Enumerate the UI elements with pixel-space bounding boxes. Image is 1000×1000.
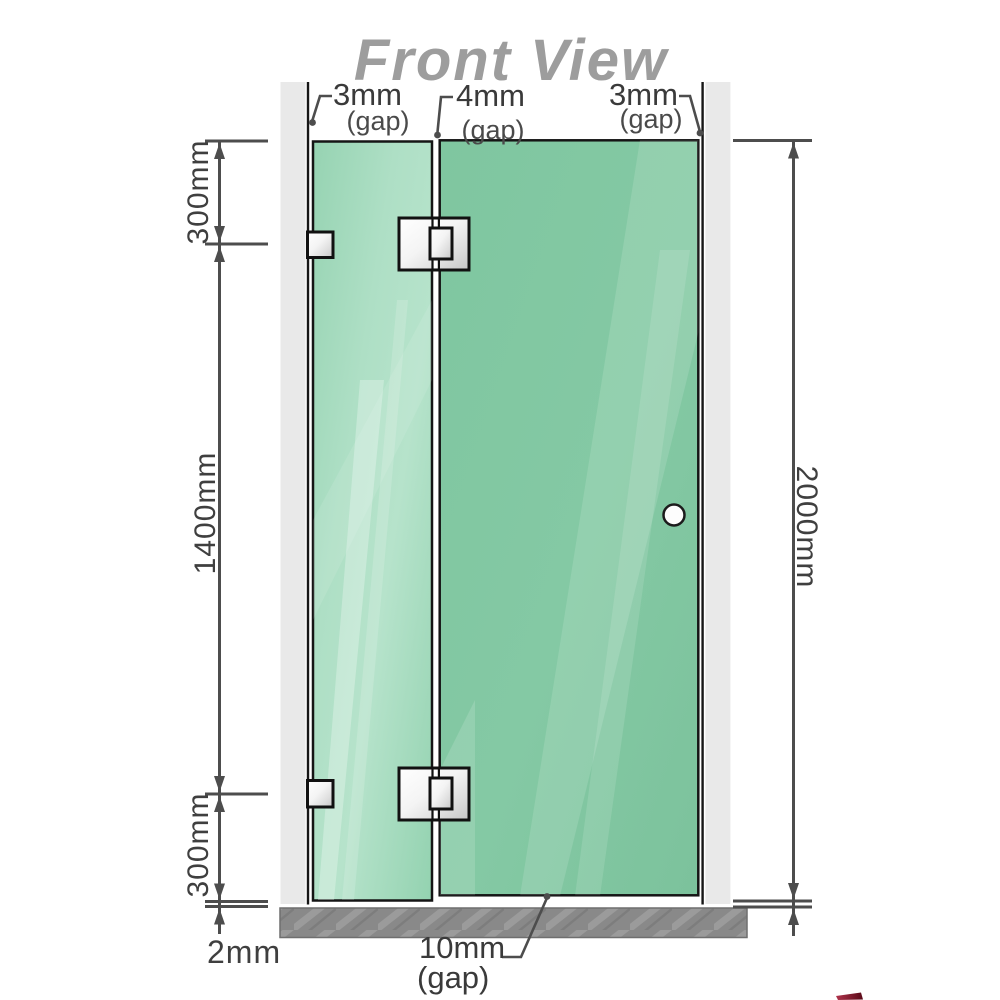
dimension-left-middle: 1400mm xyxy=(189,452,222,575)
dimension-right-total: 2000mm xyxy=(790,466,823,589)
wall-bracket-top xyxy=(308,232,334,258)
gap-label-top-middle-value: 4mm xyxy=(456,78,525,113)
door-knob xyxy=(664,505,685,526)
front-view-diagram: Front View 3mm (gap) 4mm (gap) 3mm (gap)… xyxy=(0,0,1000,1000)
wall-bracket-bottom xyxy=(308,781,334,808)
gap-label-top-middle-word: (gap) xyxy=(461,115,524,145)
hinge-bottom xyxy=(399,768,469,820)
right-wall xyxy=(705,82,730,904)
dimension-left-bottom: 300mm xyxy=(182,792,215,897)
gap-label-bottom-word: (gap) xyxy=(417,960,489,995)
hinge-top xyxy=(399,218,469,270)
logo-fragment xyxy=(836,993,863,1000)
dimension-left-top: 300mm xyxy=(182,139,215,244)
door-glass-panel xyxy=(440,140,699,896)
gap-label-top-left-word: (gap) xyxy=(346,106,409,136)
dimension-floor-gap: 2mm xyxy=(207,934,281,970)
left-wall xyxy=(281,82,306,904)
floor-bar xyxy=(280,908,747,938)
diagram-canvas: Front View 3mm (gap) 4mm (gap) 3mm (gap)… xyxy=(0,0,1000,1000)
gap-label-top-right-word: (gap) xyxy=(619,104,682,134)
